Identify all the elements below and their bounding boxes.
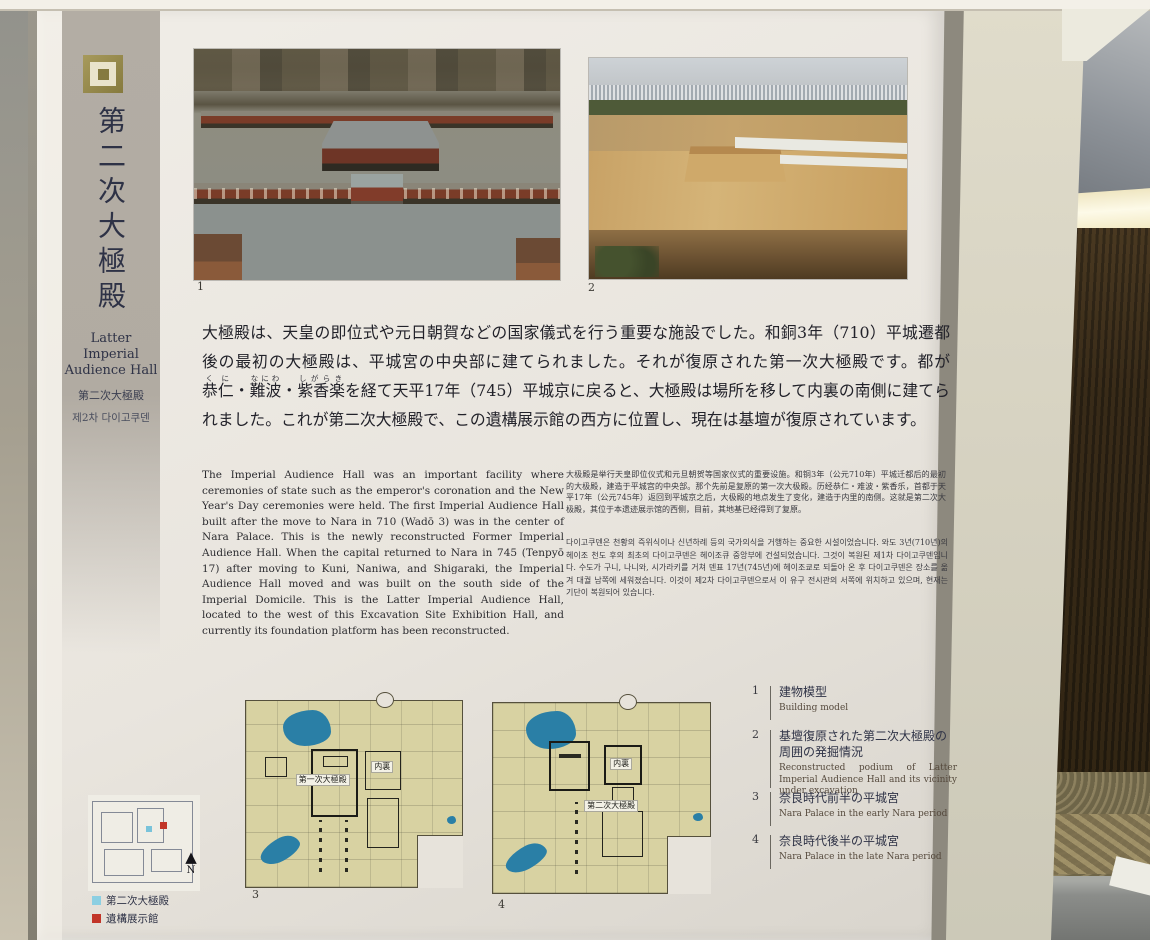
caption4-texts: 奈良時代後半の平城宮 Nara Palace in the late Nara … [779, 833, 942, 869]
caption2-number: 2 [752, 728, 762, 798]
legend-swatch-red [92, 914, 101, 923]
north-arrow-icon: ▲ [181, 850, 201, 864]
caption-item-3: 3 奈良時代前半の平城宮 Nara Palace in the early Na… [752, 790, 957, 826]
caption1-number: 1 [752, 684, 762, 720]
map4-pond-bottom [501, 838, 550, 878]
north-label: N [181, 864, 201, 878]
aerial-sky [589, 58, 907, 85]
aerial-treeline [589, 100, 907, 115]
map3-pond-bottom [256, 830, 303, 869]
map4-former-site-compound [549, 741, 590, 791]
legend-row-daigokuden: 第二次大極殿 [92, 893, 169, 908]
mark-icon-center [98, 69, 109, 80]
model-main-hall [322, 121, 439, 172]
map3-west-building [265, 757, 286, 778]
subtitle-korean: 제2차 다이고쿠덴 [62, 410, 160, 425]
caption4-divider [770, 835, 771, 869]
photo1-number: 1 [197, 280, 204, 293]
locator-block-4 [151, 849, 182, 872]
model-foreground-roofs [194, 204, 560, 280]
locator-marker-daigokuden [146, 826, 152, 832]
legend-label-daigokuden: 第二次大極殿 [106, 893, 169, 908]
map3-pond-east [447, 816, 456, 824]
map-late-nara: 内裏 第二次大極殿 [492, 702, 711, 894]
building-model-photo [193, 48, 561, 281]
map3-colonnade-left [319, 820, 322, 872]
map4-label-dairi: 内裏 [610, 758, 632, 770]
panel-left-highlight [37, 8, 62, 940]
museum-panel-photo: 第二次大極殿 Latter Imperial Audience Hall 第二次… [0, 0, 1150, 940]
caption2-divider [770, 730, 771, 788]
caption3-divider [770, 792, 771, 826]
caption3-english: Nara Palace in the early Nara period [779, 809, 947, 821]
caption1-japanese: 建物模型 [779, 684, 848, 700]
map4-former-site-building [559, 750, 581, 758]
nested-squares-mark-icon [83, 55, 123, 93]
body-ja-sep1: ・ [234, 381, 250, 400]
legend-label-exhibition-hall: 遺構展示館 [106, 911, 159, 926]
caption3-number: 3 [752, 790, 762, 826]
body-japanese: 大極殿は、天皇の即位式や元日朝賀などの国家儀式を行う重要な施設でした。和銅3年（… [202, 318, 950, 434]
locator-block-3 [104, 849, 144, 876]
caption-item-4: 4 奈良時代後半の平城宮 Nara Palace in the late Nar… [752, 833, 957, 869]
ceiling-strip [0, 0, 1150, 11]
caption4-japanese: 奈良時代後半の平城宮 [779, 833, 942, 849]
body-ja-part1: 大極殿は、天皇の即位式や元日朝賀などの国家儀式を行う重要な施設でした。和銅3年（… [202, 323, 950, 371]
caption3-texts: 奈良時代前半の平城宮 Nara Palace in the early Nara… [779, 790, 947, 826]
ruby-kuni-reading: くに [202, 374, 234, 383]
subtitle-chinese: 第二次大極殿 [62, 387, 160, 403]
map3-north-bump [376, 692, 394, 708]
subtitle-english-line1: Latter Imperial [62, 331, 160, 363]
mark-icon-middle [90, 62, 116, 86]
caption2-texts: 基壇復原された第二次大極殿の周囲の発掘情況 Reconstructed podi… [779, 728, 957, 798]
caption1-divider [770, 686, 771, 720]
panel-subtitles: Latter Imperial Audience Hall 第二次大極殿 제2차… [62, 331, 160, 425]
legend-row-exhibition-hall: 遺構展示館 [92, 911, 169, 926]
map3-hall-building [323, 756, 347, 766]
panel-title-vertical: 第二次大極殿 [86, 106, 132, 356]
map4-notch [667, 836, 711, 894]
excavation-aerial-photo [588, 57, 908, 280]
ruby-shigaraki: 紫香楽しがらき [297, 381, 345, 400]
body-korean: 다이고쿠덴은 천황의 즉위식이나 신년하례 등의 국가의식을 거행하는 중요한 … [566, 537, 948, 600]
aerial-shrubs [595, 246, 659, 277]
caption4-english: Nara Palace in the late Nara period [779, 852, 942, 864]
ruby-kuni-base: 恭仁 [202, 381, 234, 400]
body-chinese: 大极殿是举行天皇即位仪式和元旦朝贺等国家仪式的重要设施。和铜3年（公元710年）… [566, 469, 946, 515]
locator-block-1 [101, 812, 132, 843]
caption-item-1: 1 建物模型 Building model [752, 684, 957, 720]
map3-number: 3 [252, 888, 259, 901]
model-right-building [516, 238, 560, 280]
map3-pond-top [283, 710, 331, 746]
photo2-number: 2 [588, 281, 595, 294]
ruby-naniwa-base: 難波 [250, 381, 282, 400]
map3-label-hall: 第一次大極殿 [296, 774, 350, 786]
map4-number: 4 [498, 898, 505, 911]
north-arrow: ▲ N [181, 850, 201, 878]
model-left-building [194, 234, 242, 280]
aerial-podium [684, 146, 786, 181]
map3-notch [417, 835, 463, 888]
ruby-naniwa: 難波なにわ [250, 381, 282, 400]
map3-colonnade-right [345, 820, 348, 872]
map3-south-compound [367, 798, 399, 848]
body-english: The Imperial Audience Hall was an import… [202, 468, 564, 640]
map-early-nara: 第一次大極殿 内裏 [245, 700, 463, 888]
caption-item-2: 2 基壇復原された第二次大極殿の周囲の発掘情況 Reconstructed po… [752, 728, 957, 798]
caption3-japanese: 奈良時代前半の平城宮 [779, 790, 947, 806]
map4-south-compound [602, 811, 643, 857]
body-ja-sep2: ・ [281, 381, 297, 400]
locator-legend: 第二次大極殿 遺構展示館 [92, 893, 169, 926]
ruby-shigaraki-base: 紫香楽 [297, 381, 345, 400]
map4-pond-east [693, 813, 703, 821]
map4-north-bump [619, 694, 637, 710]
ruby-kuni: 恭仁くに [202, 381, 234, 400]
map4-label-hall: 第二次大極殿 [584, 800, 638, 812]
caption1-texts: 建物模型 Building model [779, 684, 848, 720]
ruby-shigaraki-reading: しがらき [297, 374, 345, 383]
caption4-number: 4 [752, 833, 762, 869]
map3-label-dairi: 内裏 [371, 761, 393, 773]
subtitle-english-line2: Audience Hall [62, 363, 160, 379]
caption2-japanese: 基壇復原された第二次大極殿の周囲の発掘情況 [779, 728, 957, 760]
map4-colonnade-left [575, 802, 578, 874]
legend-swatch-blue [92, 896, 101, 905]
locator-marker-exhibition-hall [160, 822, 167, 829]
model-far-buildings [194, 49, 560, 91]
aerial-city [589, 85, 907, 100]
caption1-english: Building model [779, 703, 848, 715]
ruby-naniwa-reading: なにわ [250, 374, 282, 383]
